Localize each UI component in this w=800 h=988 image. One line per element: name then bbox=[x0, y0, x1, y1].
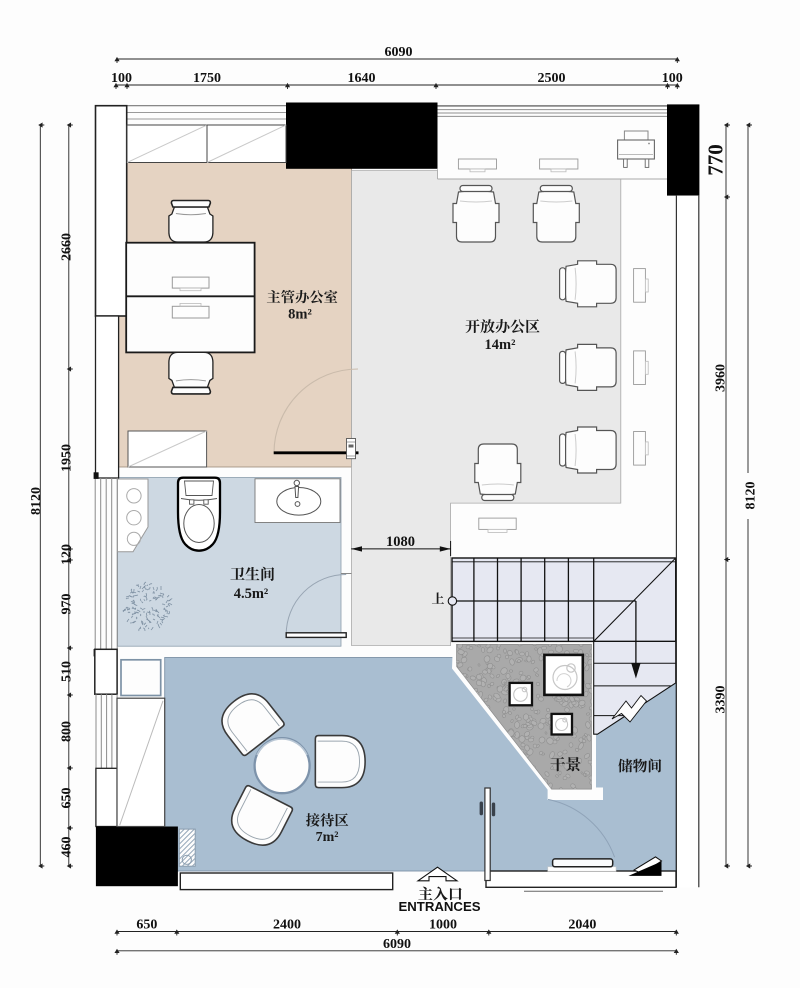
svg-text:6090: 6090 bbox=[383, 937, 411, 952]
svg-text:650: 650 bbox=[136, 918, 157, 933]
svg-text:510: 510 bbox=[60, 661, 75, 682]
svg-text:1950: 1950 bbox=[60, 444, 75, 472]
svg-text:800: 800 bbox=[60, 721, 75, 742]
svg-text:770: 770 bbox=[704, 144, 728, 176]
svg-text:460: 460 bbox=[60, 837, 75, 858]
svg-text:6090: 6090 bbox=[385, 45, 413, 60]
svg-text:3960: 3960 bbox=[713, 364, 728, 392]
svg-text:ENTRANCES: ENTRANCES bbox=[398, 899, 480, 914]
svg-text:650: 650 bbox=[60, 788, 75, 809]
svg-text:7m²: 7m² bbox=[316, 830, 339, 845]
svg-text:4.5m²: 4.5m² bbox=[234, 586, 269, 602]
svg-text:8120: 8120 bbox=[744, 482, 759, 510]
svg-text:1640: 1640 bbox=[348, 71, 376, 86]
svg-text:1080: 1080 bbox=[386, 534, 415, 550]
svg-text:1000: 1000 bbox=[429, 918, 457, 933]
svg-text:970: 970 bbox=[60, 594, 75, 615]
svg-text:100: 100 bbox=[662, 71, 683, 86]
svg-text:2660: 2660 bbox=[60, 233, 75, 261]
svg-text:3390: 3390 bbox=[713, 686, 728, 714]
svg-text:8120: 8120 bbox=[29, 487, 44, 515]
svg-text:2400: 2400 bbox=[273, 918, 301, 933]
svg-text:2040: 2040 bbox=[568, 918, 596, 933]
svg-text:14m²: 14m² bbox=[485, 337, 516, 353]
svg-text:2500: 2500 bbox=[538, 71, 566, 86]
svg-text:1750: 1750 bbox=[193, 71, 221, 86]
svg-text:120: 120 bbox=[60, 544, 75, 565]
svg-text:100: 100 bbox=[111, 71, 132, 86]
svg-text:8m²: 8m² bbox=[288, 307, 312, 323]
